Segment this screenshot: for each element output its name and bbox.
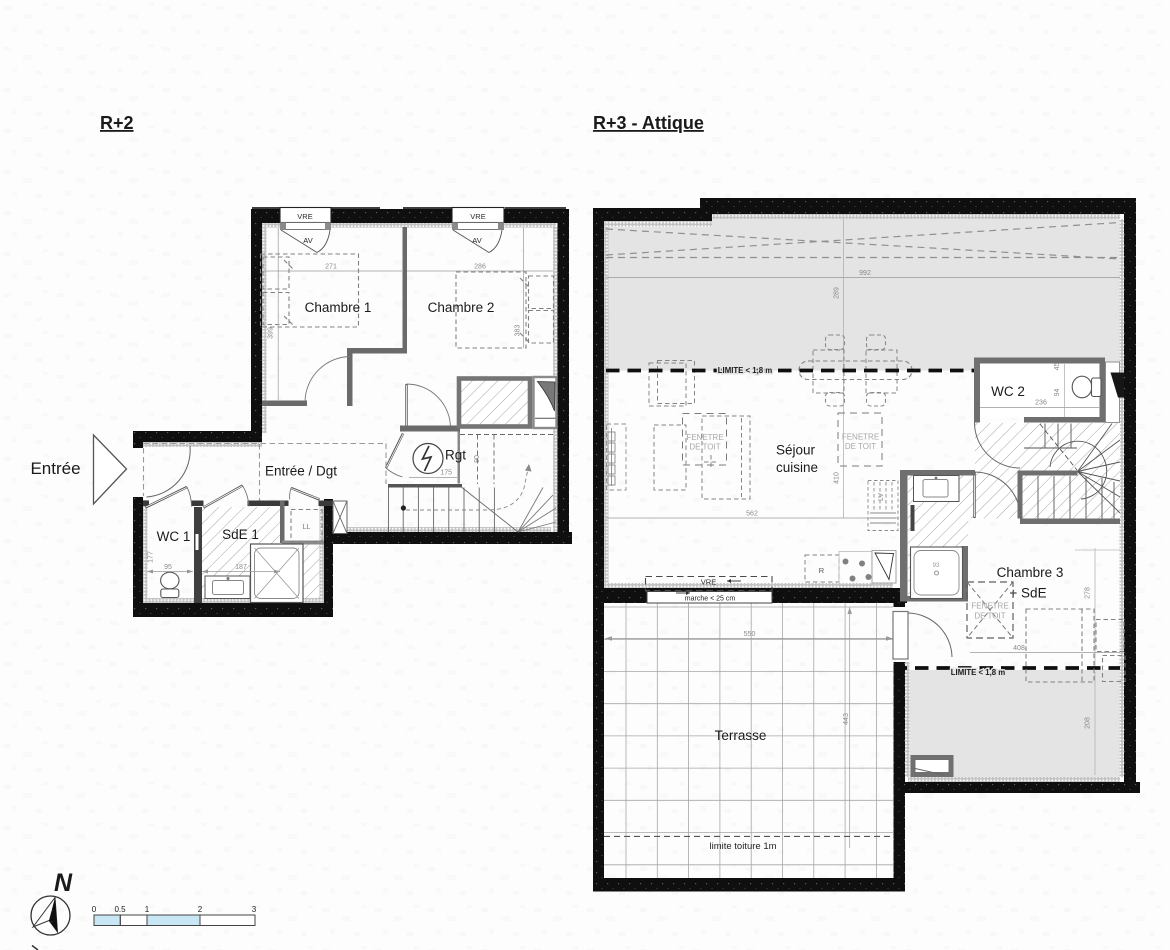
svg-text:FENETRE: FENETRE [971,602,1008,611]
svg-text:AV: AV [472,236,481,245]
svg-text:0: 0 [92,905,97,914]
svg-text:562: 562 [746,511,758,518]
svg-text:383: 383 [515,325,522,337]
svg-text:FENETRE: FENETRE [842,433,879,442]
svg-text:286: 286 [474,264,486,271]
svg-text:2: 2 [198,905,203,914]
svg-text:VRE: VRE [470,212,485,221]
svg-text:WC 1: WC 1 [157,529,191,544]
svg-text:550: 550 [744,631,756,638]
svg-text:45: 45 [1054,363,1061,371]
svg-text:DE TOIT: DE TOIT [845,442,876,451]
svg-text:90: 90 [474,455,481,463]
svg-text:Entrée / Dgt: Entrée / Dgt [265,464,337,479]
svg-text:LV: LV [878,493,885,501]
svg-text:R: R [819,566,825,575]
svg-text:FENETRE: FENETRE [686,433,723,442]
svg-text:177: 177 [148,551,155,563]
svg-text:208: 208 [1085,717,1092,729]
svg-text:N: N [54,869,73,897]
svg-text:1: 1 [145,905,150,914]
svg-text:Chambre 2: Chambre 2 [428,300,495,315]
svg-text:DE TOIT: DE TOIT [689,443,720,452]
svg-text:93: 93 [933,563,940,569]
svg-text:marche < 25 cm: marche < 25 cm [685,596,736,603]
svg-text:443: 443 [843,713,850,725]
svg-text:289: 289 [834,287,841,299]
svg-text:Rgt: Rgt [445,448,466,463]
svg-text:Terrasse: Terrasse [715,728,767,743]
svg-text:cuisine: cuisine [776,460,818,475]
svg-text:992: 992 [859,270,871,277]
svg-text:Chambre 3: Chambre 3 [997,565,1064,580]
svg-text:VRE: VRE [701,578,716,587]
svg-text:AV: AV [303,236,312,245]
svg-text:Séjour: Séjour [776,443,816,458]
svg-text:3: 3 [252,905,257,914]
svg-text:187: 187 [235,564,247,571]
svg-text:WC 2: WC 2 [991,384,1025,399]
svg-text:236: 236 [1035,400,1047,407]
svg-text:LIMITE < 1,8 m: LIMITE < 1,8 m [951,668,1005,677]
svg-text:LIMITE < 1,8 m: LIMITE < 1,8 m [718,366,772,375]
svg-text:limite toiture 1m: limite toiture 1m [709,841,776,852]
svg-text:R+3 - Attique: R+3 - Attique [593,113,704,133]
svg-text:Chambre 1: Chambre 1 [305,300,372,315]
svg-text:408: 408 [1013,645,1025,652]
svg-text:+ SdE: + SdE [1009,586,1046,601]
svg-text:271: 271 [325,264,337,271]
svg-text:R+2: R+2 [100,113,134,133]
svg-text:399: 399 [268,327,275,339]
svg-text:VRE: VRE [297,212,312,221]
svg-text:Entrée: Entrée [30,459,80,478]
svg-text:175: 175 [440,470,452,477]
svg-text:410: 410 [834,472,841,484]
svg-text:94: 94 [1054,389,1061,397]
svg-text:SdE 1: SdE 1 [222,527,259,542]
svg-text:LL: LL [303,524,311,531]
svg-text:0.5: 0.5 [114,905,126,914]
svg-text:95: 95 [164,564,172,571]
svg-text:278: 278 [1085,587,1092,599]
svg-text:DE TOIT: DE TOIT [974,612,1005,621]
